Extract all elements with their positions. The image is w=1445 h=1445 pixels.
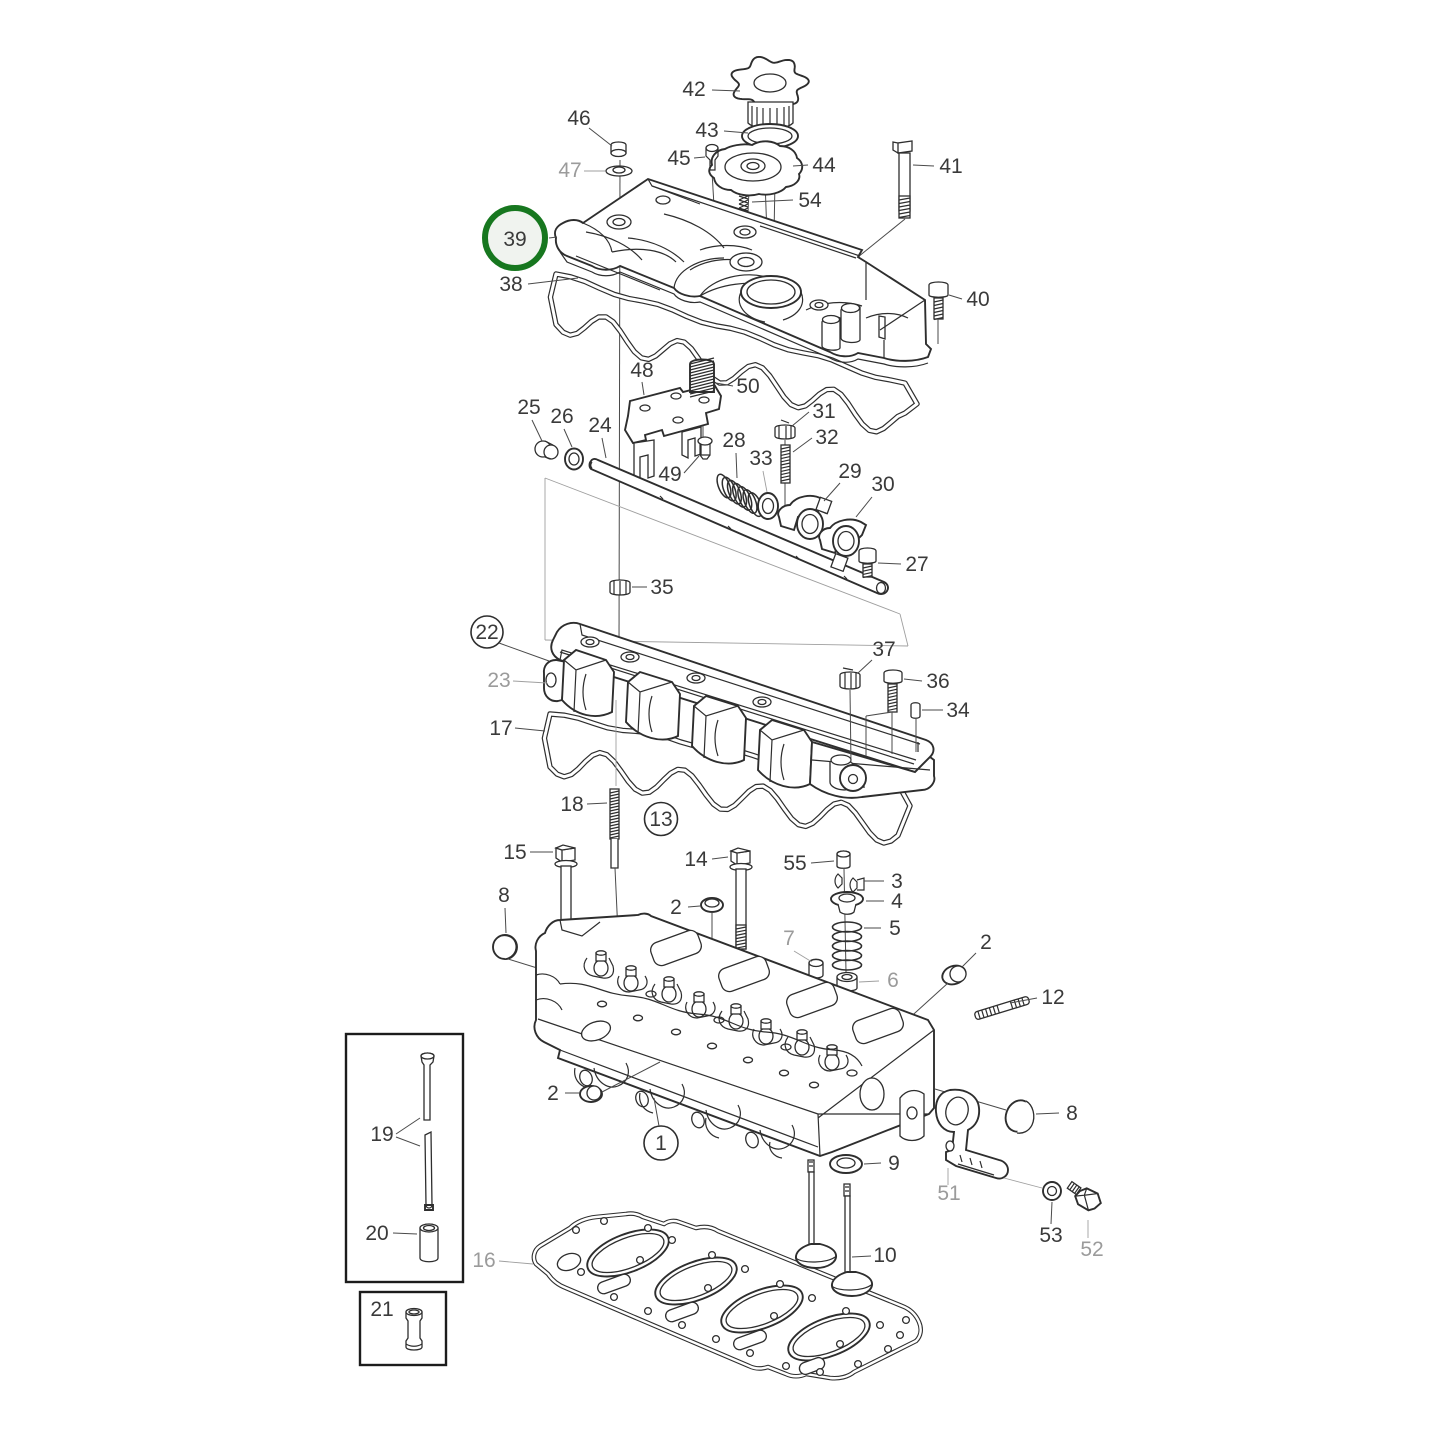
svg-text:6: 6 <box>887 969 899 992</box>
svg-text:7: 7 <box>783 927 795 950</box>
svg-text:24: 24 <box>588 414 612 437</box>
svg-text:44: 44 <box>812 154 836 177</box>
svg-text:26: 26 <box>550 405 573 428</box>
svg-text:20: 20 <box>365 1222 388 1245</box>
svg-text:39: 39 <box>503 228 526 251</box>
svg-text:8: 8 <box>498 884 510 907</box>
svg-text:25: 25 <box>517 396 540 419</box>
svg-text:31: 31 <box>812 400 835 423</box>
svg-text:28: 28 <box>722 429 745 452</box>
svg-text:12: 12 <box>1041 986 1064 1009</box>
svg-text:52: 52 <box>1080 1238 1103 1261</box>
svg-text:10: 10 <box>873 1244 896 1267</box>
svg-text:42: 42 <box>682 78 705 101</box>
svg-text:55: 55 <box>783 852 806 875</box>
svg-text:4: 4 <box>891 890 903 913</box>
svg-text:54: 54 <box>798 189 822 212</box>
svg-text:9: 9 <box>888 1152 900 1175</box>
svg-text:2: 2 <box>670 896 682 919</box>
svg-text:47: 47 <box>558 159 581 182</box>
svg-text:1: 1 <box>655 1132 667 1155</box>
svg-text:50: 50 <box>736 375 759 398</box>
svg-text:51: 51 <box>937 1182 960 1205</box>
svg-text:33: 33 <box>749 447 772 470</box>
svg-text:37: 37 <box>872 638 895 661</box>
svg-text:13: 13 <box>649 808 672 831</box>
svg-text:21: 21 <box>370 1298 393 1321</box>
svg-text:32: 32 <box>815 426 838 449</box>
svg-text:34: 34 <box>946 699 970 722</box>
svg-text:16: 16 <box>472 1249 495 1272</box>
svg-text:36: 36 <box>926 670 949 693</box>
svg-text:23: 23 <box>487 669 510 692</box>
svg-text:2: 2 <box>980 931 992 954</box>
svg-text:38: 38 <box>499 273 522 296</box>
svg-text:15: 15 <box>503 841 526 864</box>
svg-text:18: 18 <box>560 793 583 816</box>
svg-text:43: 43 <box>695 119 718 142</box>
svg-text:41: 41 <box>939 155 962 178</box>
svg-text:5: 5 <box>889 917 901 940</box>
svg-text:2: 2 <box>547 1082 559 1105</box>
svg-text:17: 17 <box>489 717 512 740</box>
svg-text:8: 8 <box>1066 1102 1078 1125</box>
svg-text:27: 27 <box>905 553 928 576</box>
svg-text:22: 22 <box>475 621 498 644</box>
svg-text:40: 40 <box>966 288 989 311</box>
svg-text:45: 45 <box>667 147 690 170</box>
svg-text:46: 46 <box>567 107 590 130</box>
svg-text:48: 48 <box>630 359 653 382</box>
svg-text:53: 53 <box>1039 1224 1062 1247</box>
svg-text:35: 35 <box>650 576 673 599</box>
svg-text:29: 29 <box>838 460 861 483</box>
svg-text:19: 19 <box>370 1123 393 1146</box>
svg-text:30: 30 <box>871 473 894 496</box>
svg-text:14: 14 <box>684 848 708 871</box>
svg-text:49: 49 <box>658 463 681 486</box>
